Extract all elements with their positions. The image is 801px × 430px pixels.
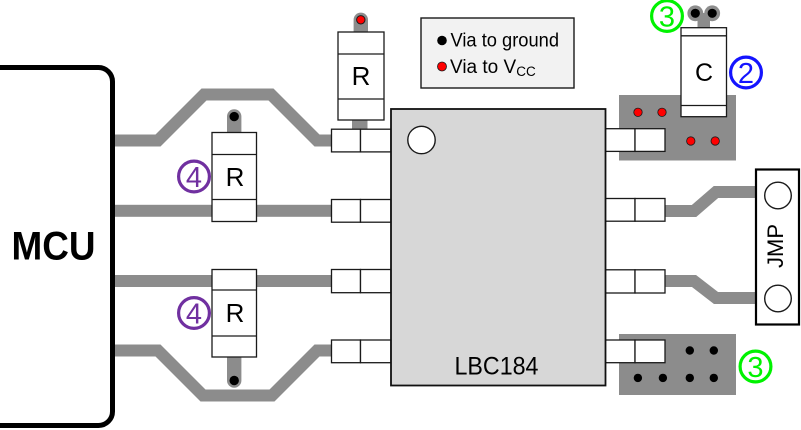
svg-text:4: 4 (186, 162, 202, 194)
svg-text:R: R (352, 61, 371, 91)
svg-text:4: 4 (186, 298, 202, 330)
svg-text:3: 3 (747, 352, 763, 384)
svg-text:3: 3 (659, 1, 675, 33)
svg-text:2: 2 (738, 58, 754, 90)
svg-text:R: R (226, 162, 245, 192)
svg-text:MCU: MCU (12, 224, 96, 268)
svg-text:R: R (226, 298, 245, 328)
svg-text:Via to ground: Via to ground (451, 31, 560, 52)
svg-text:LBC184: LBC184 (455, 353, 539, 381)
svg-text:JMP: JMP (763, 224, 788, 268)
svg-text:C: C (695, 59, 713, 87)
